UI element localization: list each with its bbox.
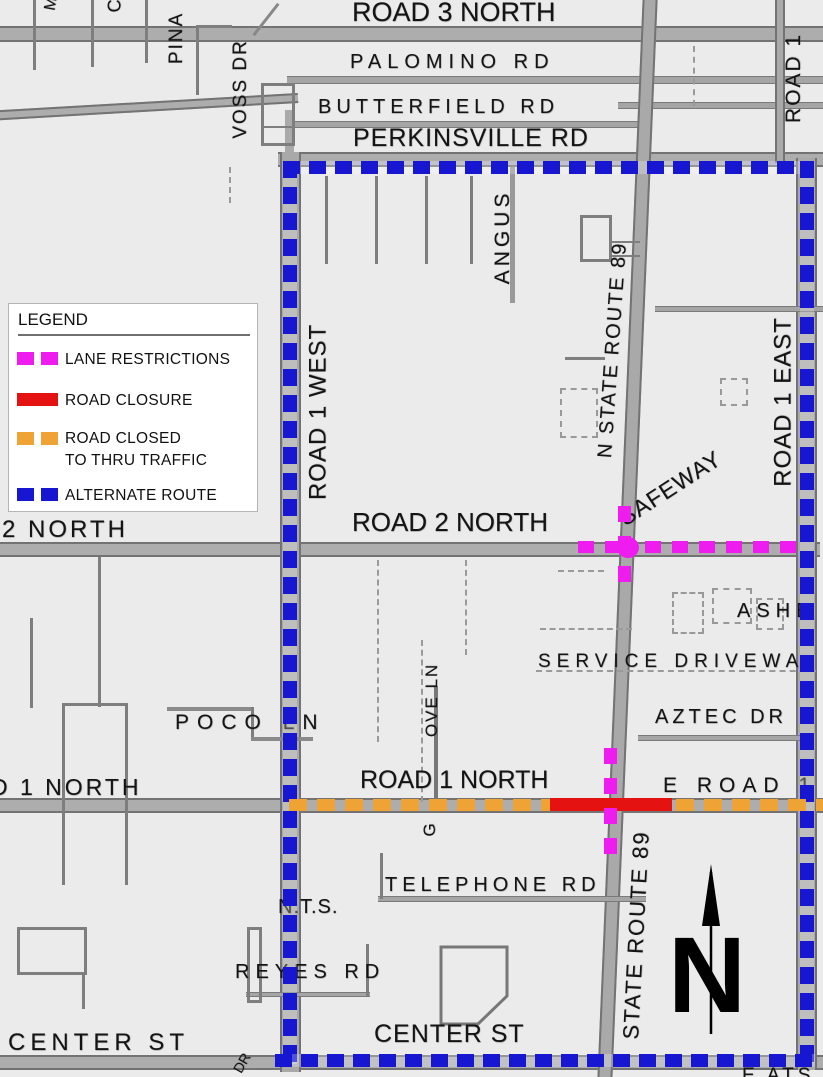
road-closure-swatch-icon xyxy=(17,393,58,406)
building-outline-dashed xyxy=(672,592,704,634)
label-e-road-1: E ROAD 1 xyxy=(663,775,817,797)
palomino-road xyxy=(287,76,823,84)
road-closed-thru-east xyxy=(676,799,823,811)
road-closed-thru-west xyxy=(289,799,550,811)
lane-restriction-intersection-blob xyxy=(617,537,639,558)
minor-street-dashed xyxy=(693,46,695,106)
legend-title-underline xyxy=(18,334,250,336)
minor-street-dashed xyxy=(465,560,467,655)
label-road-1-north-left: D 1 NORTH xyxy=(0,775,142,799)
road-3-north-road xyxy=(0,26,823,42)
alternate-route-swatch-icon xyxy=(41,488,58,501)
label-cut-letter-c: C xyxy=(106,0,125,13)
building-outline-dashed xyxy=(560,388,598,438)
label-road-1-top: ROAD 1 xyxy=(783,33,805,123)
minor-street xyxy=(196,25,232,28)
poco-ln-road xyxy=(251,737,313,741)
building-outline-pentagon xyxy=(438,944,512,1028)
legend-road-closure-label: ROAD CLOSURE xyxy=(65,390,193,412)
building-outline xyxy=(17,927,87,975)
north-arrow-label: N xyxy=(668,912,746,1037)
minor-street xyxy=(145,0,148,63)
label-gove-ln-lower: G xyxy=(421,823,439,836)
label-palomino-rd: PALOMINO RD xyxy=(350,52,555,73)
reyes-rd-road xyxy=(246,992,370,997)
label-road-3-north: ROAD 3 NORTH xyxy=(352,0,556,26)
building-outline-dashed xyxy=(720,378,748,406)
minor-street xyxy=(33,0,36,70)
label-angus: ANGUS xyxy=(492,190,514,285)
minor-street xyxy=(30,618,33,708)
minor-street-dashed xyxy=(229,167,231,203)
label-pina: PINA xyxy=(167,12,187,64)
telephone-rd-stub xyxy=(380,853,383,899)
minor-street xyxy=(196,25,199,95)
road-closed-swatch-icon xyxy=(41,432,58,445)
telephone-rd-road xyxy=(378,896,646,902)
property-line xyxy=(470,176,473,264)
legend-title: LEGEND xyxy=(18,310,88,330)
building-outline xyxy=(62,703,128,706)
road-closed-swatch-icon xyxy=(17,432,34,445)
property-line xyxy=(375,176,378,264)
legend-road-closed-label: ROAD CLOSED xyxy=(65,428,181,450)
label-bottom-edge-fragment: E ATS xyxy=(742,1066,814,1077)
legend-lane-restrictions-label: LANE RESTRICTIONS xyxy=(65,349,230,371)
detour-map-canvas: ROAD 3 NORTH PALOMINO RD BUTTERFIELD RD … xyxy=(0,0,823,1077)
legend-road-closed-label-line2: TO THRU TRAFFIC xyxy=(65,450,207,472)
label-center-st: CENTER ST xyxy=(374,1021,525,1047)
label-road-2-north: ROAD 2 NORTH xyxy=(352,509,548,536)
minor-street-dashed xyxy=(377,560,379,742)
label-cut-letter-m: M xyxy=(43,0,62,12)
alternate-route-top xyxy=(283,161,814,174)
label-reyes-rd: REYES RD xyxy=(235,962,385,983)
minor-street xyxy=(91,0,94,67)
lane-restrictions-swatch-icon xyxy=(17,352,34,365)
palomino-west-sloped-road xyxy=(0,93,298,120)
lane-restriction-road2n-east xyxy=(645,541,804,553)
minor-street-dashed xyxy=(558,570,604,572)
label-aztec-dr: AZTEC DR xyxy=(655,707,787,728)
label-service-driveway: SERVICE DRIVEWA xyxy=(538,652,804,672)
property-line xyxy=(325,176,328,264)
aztec-dr-road xyxy=(638,735,805,741)
label-road-2-north-left: 2 NORTH xyxy=(2,517,128,542)
alternate-route-bottom xyxy=(275,1054,815,1067)
minor-line xyxy=(565,357,605,360)
alternate-route-right xyxy=(800,161,814,1063)
building-outline xyxy=(82,975,85,1009)
property-line xyxy=(425,176,428,264)
building-outline xyxy=(261,83,295,146)
label-poco-ln: POCO LN xyxy=(175,712,326,734)
label-perkinsville-rd: PERKINSVILLE RD xyxy=(353,125,589,151)
label-road-1-west: ROAD 1 WEST xyxy=(305,324,330,500)
label-state-route-89: STATE ROUTE 89 xyxy=(619,830,653,1040)
label-road-1-east: ROAD 1 EAST xyxy=(770,317,795,487)
legend-alternate-route-label: ALTERNATE ROUTE xyxy=(65,485,217,507)
label-gove-ln-upper: OVE LN xyxy=(423,663,441,737)
building-divider xyxy=(261,126,295,128)
minor-street xyxy=(98,557,101,707)
label-voss-dr: VOSS DR xyxy=(231,39,251,139)
minor-street-dashed xyxy=(540,628,632,630)
alternate-route-swatch-icon xyxy=(17,488,34,501)
label-center-st-left: CENTER ST xyxy=(8,1030,189,1055)
alternate-route-left xyxy=(283,161,297,1064)
legend: LEGEND LANE RESTRICTIONS ROAD CLOSURE RO… xyxy=(8,303,258,512)
label-road-1-north: ROAD 1 NORTH xyxy=(360,767,548,793)
lane-restrictions-swatch-icon xyxy=(41,352,58,365)
minor-road-east xyxy=(655,306,823,312)
label-butterfield-rd: BUTTERFIELD RD xyxy=(318,97,559,118)
lane-restriction-sr89-at-road1n xyxy=(604,748,617,860)
label-telephone-rd: TELEPHONE RD xyxy=(385,875,601,896)
